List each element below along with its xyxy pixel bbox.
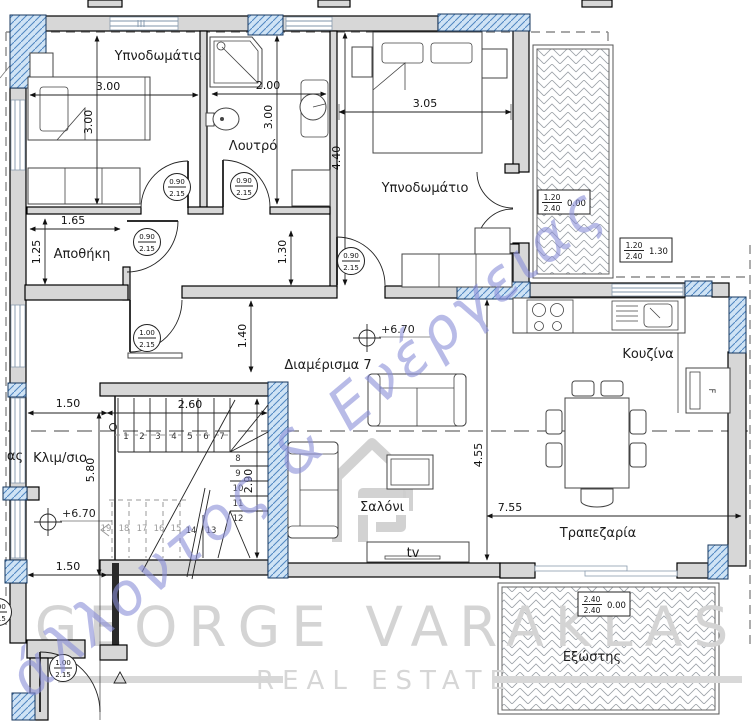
label-balcony: Εξώστης	[563, 650, 621, 665]
svg-text:7.55: 7.55	[498, 501, 523, 514]
svg-text:2.15: 2.15	[343, 264, 359, 272]
label-dining: Τραπεζαρία	[559, 526, 636, 541]
svg-text:4.40: 4.40	[330, 146, 343, 171]
svg-text:3: 3	[155, 432, 160, 442]
label-kitchen: Κουζίνα	[622, 347, 673, 362]
label-tv: tv	[407, 546, 420, 561]
svg-text:1.65: 1.65	[61, 214, 86, 227]
svg-text:3.00: 3.00	[262, 105, 275, 130]
window-top-2	[286, 17, 332, 30]
svg-text:2.60: 2.60	[178, 398, 203, 411]
door-tag: 1.002.15	[134, 325, 161, 352]
floorplan-drawing: GEORGE VARAKLAS REAL ESTATE	[0, 0, 756, 721]
svg-text:1: 1	[123, 432, 128, 442]
door-tag: 0.902.15	[338, 248, 365, 275]
svg-text:0.90: 0.90	[139, 233, 155, 241]
svg-text:2.15: 2.15	[139, 341, 155, 349]
svg-text:1.40: 1.40	[236, 324, 249, 349]
opening-box: 1.20 2.40 1.30	[620, 238, 672, 262]
label-partial: ας	[7, 449, 23, 464]
svg-text:1.30: 1.30	[649, 247, 668, 257]
svg-text:1.00: 1.00	[139, 329, 155, 337]
svg-text:4: 4	[171, 432, 176, 442]
svg-text:6: 6	[203, 432, 208, 442]
svg-text:1.20: 1.20	[626, 241, 643, 250]
svg-text:2.15: 2.15	[169, 190, 185, 198]
svg-text:1.25: 1.25	[30, 240, 43, 265]
svg-text:3.05: 3.05	[413, 97, 438, 110]
label-stairwell: Κλιμ/σιο	[33, 451, 87, 466]
label-bathroom: Λουτρό	[229, 139, 277, 154]
bed-double	[352, 32, 507, 153]
svg-text:2.15: 2.15	[236, 189, 252, 197]
svg-text:1.50: 1.50	[56, 560, 81, 573]
fridge: F	[686, 368, 730, 413]
label-living: Σαλόνι	[360, 500, 404, 515]
dresser-bedroom1	[28, 168, 140, 204]
window-kitchen	[612, 284, 683, 296]
dining-set	[546, 381, 646, 507]
label-bedroom1: Υπνοδωμάτιο	[114, 49, 202, 64]
shower	[210, 37, 262, 87]
svg-text:18: 18	[119, 524, 130, 534]
opening-box: 2.40 2.40 0.00	[578, 592, 630, 616]
door-tag: 0.902.15	[134, 229, 161, 256]
floorplan-canvas: GEORGE VARAKLAS REAL ESTATE	[0, 0, 756, 721]
svg-text:0.00: 0.00	[607, 601, 626, 611]
door-tag: 0.902.15	[164, 174, 191, 201]
brand-bar-right	[492, 676, 742, 683]
svg-text:2: 2	[139, 432, 144, 442]
svg-text:0.90: 0.90	[236, 177, 252, 185]
svg-text:+6.70: +6.70	[62, 507, 96, 520]
toilet	[206, 108, 239, 130]
svg-text:3.00: 3.00	[82, 110, 95, 135]
fridge-label: F	[706, 389, 716, 394]
window-top-1	[110, 17, 178, 30]
svg-text:3.00: 3.00	[96, 80, 121, 93]
svg-text:2.15: 2.15	[0, 615, 6, 623]
svg-text:5: 5	[187, 432, 192, 442]
svg-text:4.55: 4.55	[472, 443, 485, 468]
brand-tagline: REAL ESTATE	[256, 666, 514, 696]
svg-text:0.90: 0.90	[343, 252, 359, 260]
svg-text:7: 7	[219, 432, 224, 442]
svg-text:1.50: 1.50	[56, 397, 81, 410]
label-bedroom2: Υπνοδωμάτιο	[381, 181, 469, 196]
svg-text:2.40: 2.40	[584, 606, 601, 615]
svg-text:2.40: 2.40	[584, 595, 601, 604]
coffee-table	[387, 455, 433, 489]
svg-text:2.40: 2.40	[626, 252, 643, 261]
sliding-door-bottom	[535, 566, 677, 576]
svg-text:19: 19	[101, 524, 112, 534]
label-storage: Αποθήκη	[54, 247, 111, 262]
door-tag: 0.902.15	[231, 173, 258, 200]
bath-cabinet	[292, 170, 330, 206]
washbasin	[300, 80, 328, 137]
svg-text:0.90: 0.90	[169, 178, 185, 186]
svg-text:2.15: 2.15	[139, 245, 155, 253]
svg-text:1.00: 1.00	[0, 603, 6, 611]
svg-text:1.30: 1.30	[276, 240, 289, 265]
